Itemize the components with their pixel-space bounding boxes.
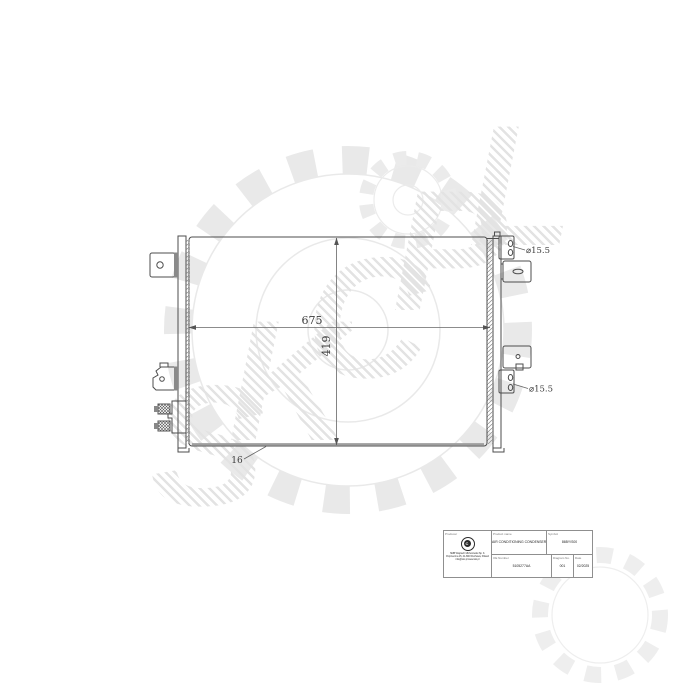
dimension-lines [189,238,528,459]
product-name-cell: Product name AIR CONDITIONING CONDENSER [491,531,546,554]
producer-cell: Producer C SMB Wojciech Michorowski Sp. … [444,531,491,577]
producer-logo-glyph: C [466,541,470,545]
bottom-left-connector-block [154,401,186,433]
condenser-core [189,237,487,446]
producer-logo: C [461,537,475,551]
company-address-line: info@skc.pl www.skc.pl [444,558,491,561]
product-name-header: Product name [492,531,546,536]
left-fin-pattern [186,240,190,444]
oe-number-cell: OE Number 5105277AA [491,554,551,577]
date-value: 02/2025 [574,564,592,568]
symbol-header: Symbol [547,531,592,536]
diagram-no-header: Diagram No. [552,555,573,560]
oe-number-value: 5105277AA [492,564,551,568]
height-dimension-label: 419 [320,336,333,357]
mid-right-bracket [503,346,531,370]
symbol-cell: Symbol 86BY/S00 [546,531,592,554]
title-block: Producer C SMB Wojciech Michorowski Sp. … [443,530,593,578]
date-header: Date [574,555,592,560]
width-dimension-label: 675 [302,314,323,327]
right-fin-pattern [488,240,494,444]
diagram-no-cell: Diagram No. 001 [551,554,573,577]
symbol-value: 86BY/S00 [547,540,592,544]
oe-number-header: OE Number [492,555,551,560]
inlet-port-diameter-label: ⌀15.5 [526,246,550,256]
right-side-tank [493,232,504,452]
condenser-technical-drawing: 675 419 ⌀15.5 ⌀15.5 16 [0,0,700,700]
diagram-no-value: 001 [552,564,573,568]
top-right-bracket [501,261,531,282]
producer-header: Producer [444,531,491,536]
mid-left-bracket [153,363,178,391]
date-cell: Date 02/2025 [573,554,592,577]
core-thickness-label: 16 [231,456,243,466]
product-name-value: AIR CONDITIONING CONDENSER [492,540,546,544]
top-left-bracket [150,253,178,278]
outlet-port-diameter-label: ⌀15.5 [529,385,553,395]
